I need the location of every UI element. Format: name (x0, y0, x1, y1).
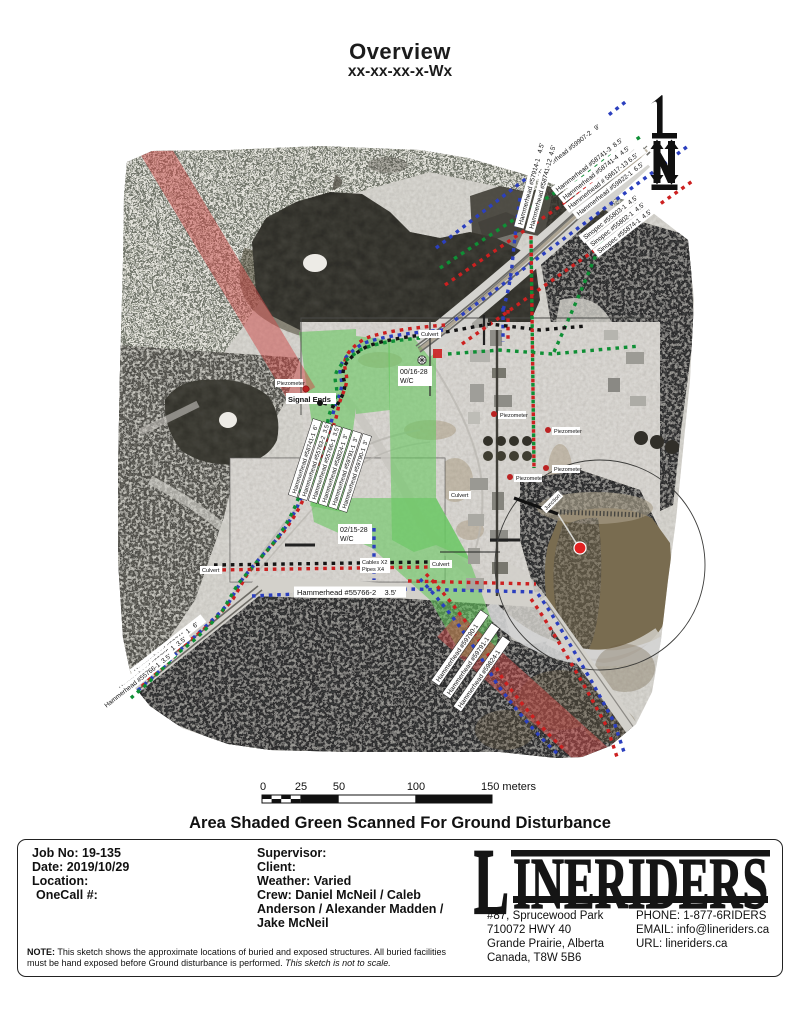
svg-text:Piezometer: Piezometer (554, 429, 582, 435)
svg-text:W/C: W/C (340, 536, 354, 543)
svg-text:W/C: W/C (400, 378, 414, 385)
svg-text:Hammerhead #55766-2 3.5': Hammerhead #55766-2 3.5' (297, 588, 397, 597)
svg-text:URL: lineriders.ca: URL: lineriders.ca (636, 938, 728, 950)
svg-text:100: 100 (407, 781, 425, 793)
svg-text:Piezometer: Piezometer (554, 467, 582, 473)
svg-text:Grande Prairie, Alberta: Grande Prairie, Alberta (487, 938, 605, 950)
svg-text:Culvert: Culvert (421, 332, 439, 338)
svg-text:Piezometer: Piezometer (500, 413, 528, 419)
svg-text:Canada, T8W 5B6: Canada, T8W 5B6 (487, 952, 581, 964)
svg-text:25: 25 (295, 781, 307, 793)
svg-text:150 meters: 150 meters (481, 781, 537, 793)
svg-text:50: 50 (333, 781, 345, 793)
svg-text:710072 HWY 40: 710072 HWY 40 (487, 924, 571, 936)
svg-text:PHONE: 1-877-6RIDERS: PHONE: 1-877-6RIDERS (636, 910, 767, 922)
svg-text:#87, Sprucewood Park: #87, Sprucewood Park (487, 910, 604, 922)
svg-text:00/16-28: 00/16-28 (400, 369, 428, 376)
svg-text:Culvert: Culvert (202, 568, 220, 574)
svg-text:Signal Ends: Signal Ends (288, 395, 331, 404)
svg-text:EMAIL: info@lineriders.ca: EMAIL: info@lineriders.ca (636, 924, 770, 936)
svg-text:Pipes X4: Pipes X4 (362, 567, 384, 573)
svg-text:Piezometer: Piezometer (516, 476, 544, 482)
svg-text:Culvert: Culvert (451, 493, 469, 499)
svg-text:Cables X2: Cables X2 (362, 560, 387, 566)
svg-text:Culvert: Culvert (432, 562, 450, 568)
svg-text:0: 0 (260, 781, 266, 793)
svg-text:02/15-28: 02/15-28 (340, 527, 368, 534)
svg-text:Piezometer: Piezometer (277, 381, 305, 387)
